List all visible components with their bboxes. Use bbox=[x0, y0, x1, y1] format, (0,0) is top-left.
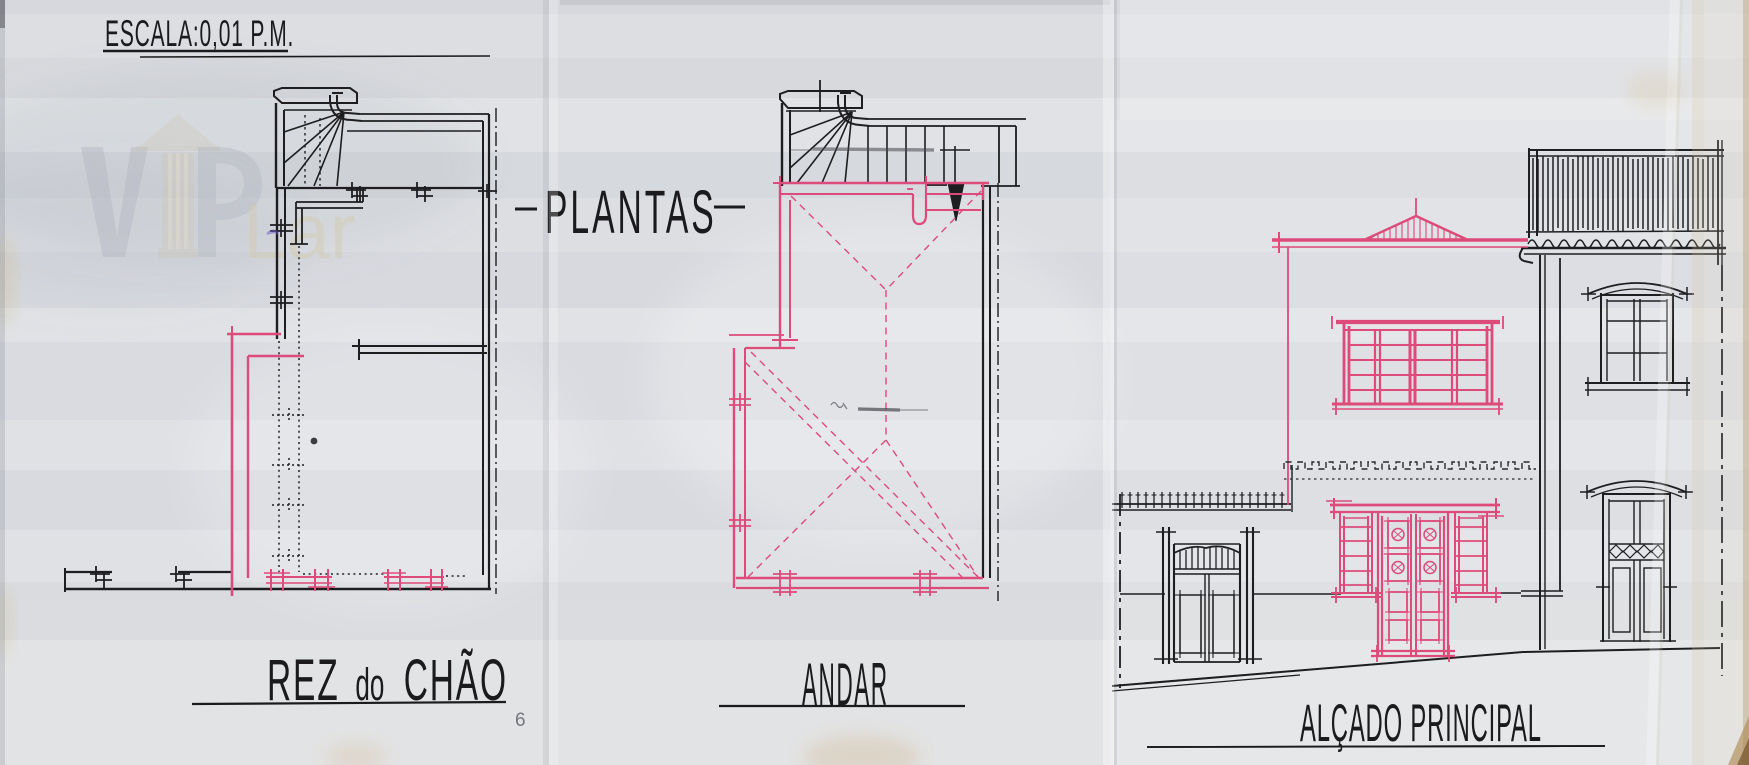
svg-text:6: 6 bbox=[515, 710, 526, 731]
svg-text:Lar: Lar bbox=[243, 187, 356, 275]
svg-text:ANDAR: ANDAR bbox=[802, 651, 888, 719]
svg-text:ALÇADO PRINCIPAL: ALÇADO PRINCIPAL bbox=[1300, 693, 1542, 752]
svg-text:ESCALA:0,01 P.M.: ESCALA:0,01 P.M. bbox=[105, 13, 294, 55]
svg-text:PLANTAS: PLANTAS bbox=[545, 178, 717, 246]
